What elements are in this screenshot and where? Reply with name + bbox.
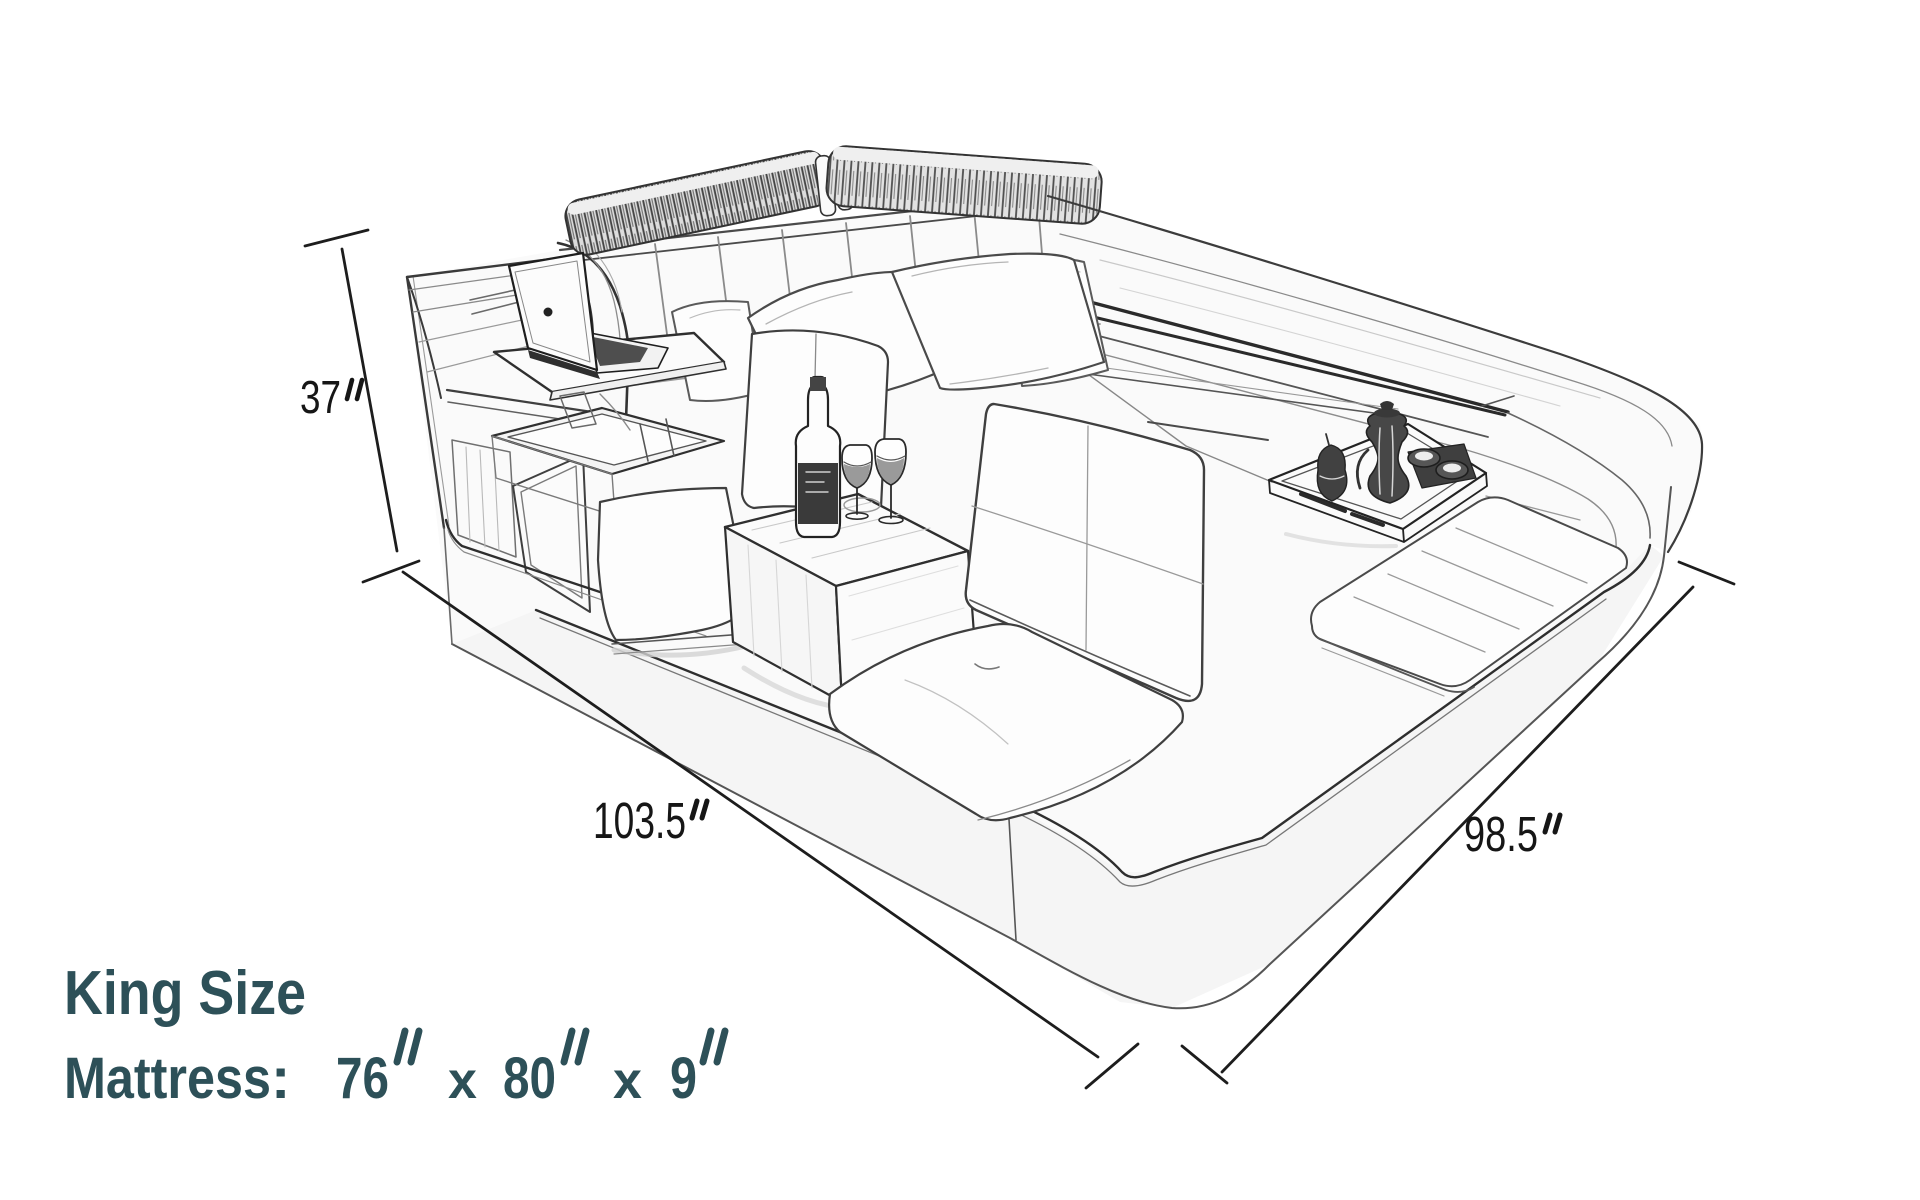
svg-text:80: 80 (503, 1046, 556, 1111)
svg-text:x: x (448, 1052, 477, 1110)
svg-text:9: 9 (670, 1046, 697, 1111)
svg-text::: : (271, 1046, 290, 1111)
svg-text:103.5: 103.5 (593, 792, 686, 849)
svg-text:76: 76 (336, 1046, 389, 1111)
svg-text:King Size: King Size (64, 959, 306, 1028)
svg-text:Mattress: Mattress (64, 1046, 271, 1111)
svg-text:37: 37 (300, 371, 341, 423)
svg-text:98.5: 98.5 (1464, 808, 1538, 862)
svg-text:x: x (613, 1052, 642, 1110)
